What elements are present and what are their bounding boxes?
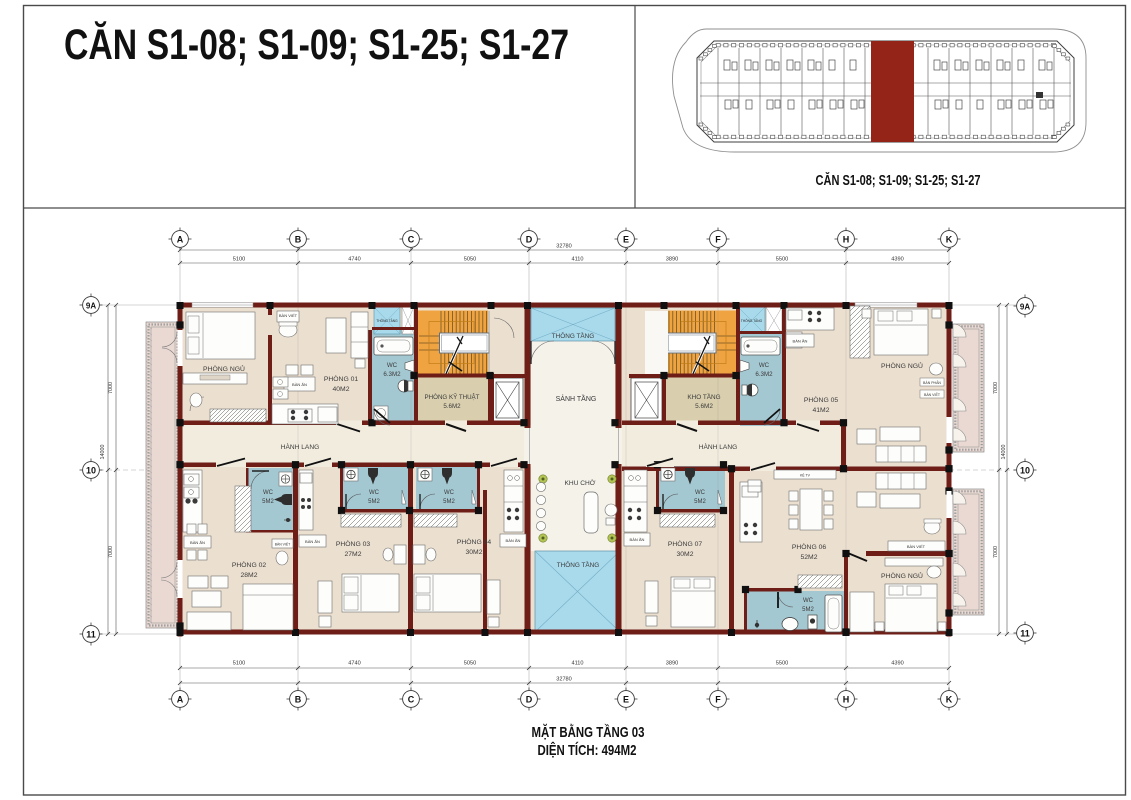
- svg-text:B: B: [295, 234, 302, 244]
- svg-text:5.6M2: 5.6M2: [695, 403, 713, 410]
- svg-text:THÔNG TẦNG: THÔNG TẦNG: [741, 318, 763, 323]
- svg-text:THÔNG TẦNG: THÔNG TẦNG: [376, 318, 398, 323]
- svg-text:9A: 9A: [1020, 302, 1030, 311]
- svg-text:5050: 5050: [464, 257, 476, 263]
- svg-text:H: H: [843, 694, 850, 704]
- svg-text:PHÒNG 01: PHÒNG 01: [324, 374, 359, 383]
- svg-text:6.3M2: 6.3M2: [383, 371, 401, 378]
- svg-text:4110: 4110: [571, 661, 583, 667]
- svg-text:5.6M2: 5.6M2: [443, 403, 461, 410]
- svg-text:4390: 4390: [891, 257, 903, 263]
- svg-text:7000: 7000: [108, 382, 114, 394]
- svg-text:4110: 4110: [571, 257, 583, 263]
- svg-text:F: F: [715, 234, 721, 244]
- svg-text:B: B: [295, 694, 302, 704]
- svg-text:4740: 4740: [348, 661, 360, 667]
- svg-text:5M2: 5M2: [694, 499, 706, 505]
- svg-text:A: A: [177, 694, 184, 704]
- svg-text:14000: 14000: [100, 445, 106, 460]
- svg-text:WC: WC: [263, 490, 274, 496]
- svg-text:F: F: [715, 694, 721, 704]
- svg-text:HÀNH LANG: HÀNH LANG: [699, 442, 737, 451]
- svg-text:KỆ TV: KỆ TV: [800, 473, 811, 478]
- svg-text:5M2: 5M2: [443, 499, 455, 505]
- svg-text:27M2: 27M2: [344, 551, 361, 558]
- svg-text:K: K: [946, 234, 953, 244]
- svg-text:WC: WC: [759, 362, 770, 369]
- svg-text:E: E: [623, 694, 629, 704]
- svg-text:WC: WC: [695, 490, 706, 496]
- svg-text:BÀN ĂN: BÀN ĂN: [793, 339, 808, 344]
- svg-text:PHÒNG NGỦ: PHÒNG NGỦ: [203, 364, 245, 373]
- svg-text:5M2: 5M2: [802, 607, 814, 613]
- svg-text:PHÒNG 07: PHÒNG 07: [668, 539, 703, 548]
- svg-text:H: H: [843, 234, 850, 244]
- svg-text:PHÒNG 03: PHÒNG 03: [336, 539, 371, 548]
- svg-text:MẶT BẰNG TẦNG 03: MẶT BẰNG TẦNG 03: [532, 723, 645, 741]
- svg-text:30M2: 30M2: [676, 551, 693, 558]
- svg-text:HÀNH LANG: HÀNH LANG: [281, 442, 319, 451]
- svg-text:5100: 5100: [233, 661, 245, 667]
- svg-text:PHÒNG 06: PHÒNG 06: [792, 542, 827, 551]
- svg-text:BÀN ĂN: BÀN ĂN: [190, 540, 205, 545]
- svg-text:40M2: 40M2: [332, 386, 349, 393]
- svg-text:5100: 5100: [233, 257, 245, 263]
- svg-text:5M2: 5M2: [262, 499, 274, 505]
- svg-text:28M2: 28M2: [240, 572, 257, 579]
- svg-text:DIỆN TÍCH: 494M2: DIỆN TÍCH: 494M2: [538, 741, 637, 759]
- svg-text:BÀN ĂN: BÀN ĂN: [506, 538, 521, 543]
- svg-text:C: C: [408, 234, 415, 244]
- svg-text:30M2: 30M2: [465, 549, 482, 556]
- svg-text:BÀN VIẾT: BÀN VIẾT: [279, 313, 298, 318]
- svg-text:C: C: [408, 694, 415, 704]
- svg-text:5050: 5050: [464, 661, 476, 667]
- svg-text:E: E: [623, 234, 629, 244]
- svg-text:BÀN VIẾT: BÀN VIẾT: [924, 392, 941, 397]
- svg-text:5M2: 5M2: [368, 499, 380, 505]
- svg-text:WC: WC: [369, 490, 380, 496]
- svg-text:KHU CHỜ: KHU CHỜ: [565, 478, 596, 487]
- svg-text:D: D: [526, 694, 533, 704]
- svg-text:6.3M2: 6.3M2: [755, 371, 773, 378]
- svg-text:A: A: [177, 234, 184, 244]
- svg-text:CĂN S1-08; S1-09; S1-25; S1-27: CĂN S1-08; S1-09; S1-25; S1-27: [64, 21, 569, 69]
- svg-text:BÀN ĂN: BÀN ĂN: [305, 539, 320, 544]
- svg-text:10: 10: [1020, 465, 1030, 475]
- svg-text:11: 11: [86, 629, 96, 639]
- svg-text:D: D: [526, 234, 533, 244]
- svg-text:4390: 4390: [891, 661, 903, 667]
- svg-text:7000: 7000: [993, 546, 999, 558]
- svg-text:9A: 9A: [86, 301, 96, 310]
- svg-text:52M2: 52M2: [800, 554, 817, 561]
- svg-text:PHÒNG NGỦ: PHÒNG NGỦ: [881, 571, 923, 580]
- svg-text:PHÒNG 05: PHÒNG 05: [804, 395, 839, 404]
- svg-text:32780: 32780: [556, 244, 572, 250]
- svg-text:4740: 4740: [348, 257, 360, 263]
- svg-text:K: K: [946, 694, 953, 704]
- svg-text:5500: 5500: [776, 257, 788, 263]
- svg-text:PHÒNG NGỦ: PHÒNG NGỦ: [881, 361, 923, 370]
- svg-text:BÀN VIẾT: BÀN VIẾT: [275, 542, 290, 547]
- svg-text:BÀN VIẾT: BÀN VIẾT: [907, 544, 926, 549]
- svg-text:14000: 14000: [1001, 445, 1007, 460]
- svg-text:41M2: 41M2: [812, 407, 829, 414]
- svg-text:3890: 3890: [666, 661, 678, 667]
- svg-text:32780: 32780: [556, 677, 572, 683]
- svg-text:WC: WC: [387, 362, 398, 369]
- svg-text:CĂN S1-08; S1-09; S1-25; S1-27: CĂN S1-08; S1-09; S1-25; S1-27: [816, 172, 981, 189]
- svg-text:11: 11: [1020, 628, 1030, 638]
- svg-text:PHÒNG 04: PHÒNG 04: [457, 537, 492, 546]
- svg-text:WC: WC: [803, 598, 814, 604]
- svg-text:10: 10: [86, 465, 96, 475]
- svg-text:PHÒNG 02: PHÒNG 02: [232, 560, 267, 569]
- svg-text:BÀN ĂN: BÀN ĂN: [292, 382, 307, 387]
- svg-text:WC: WC: [444, 490, 455, 496]
- svg-text:BÀN ĂN: BÀN ĂN: [630, 537, 645, 542]
- svg-text:PHÒNG KỸ THUẬT: PHÒNG KỸ THUẬT: [425, 394, 480, 401]
- svg-text:7000: 7000: [993, 382, 999, 394]
- svg-text:5500: 5500: [776, 661, 788, 667]
- svg-text:3890: 3890: [666, 257, 678, 263]
- svg-text:7000: 7000: [108, 546, 114, 558]
- svg-text:BÀN PHẤN: BÀN PHẤN: [923, 381, 941, 385]
